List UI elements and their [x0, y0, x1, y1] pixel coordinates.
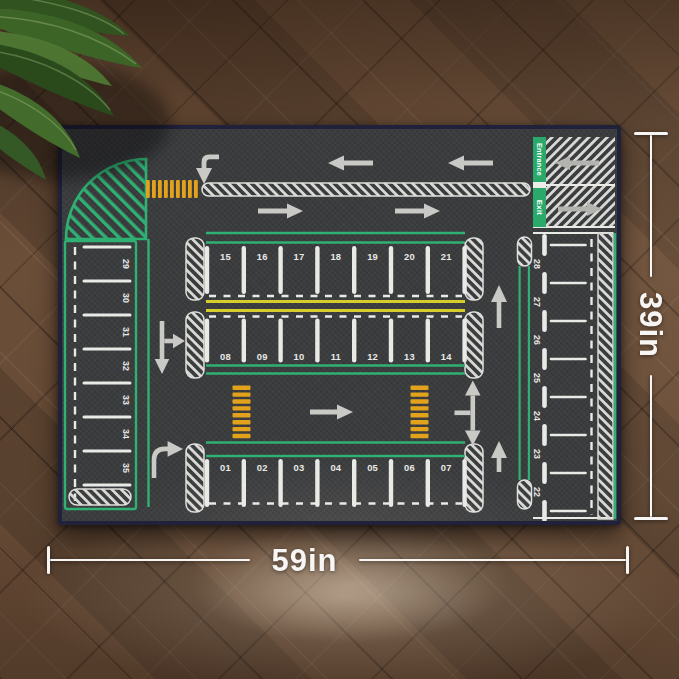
- dimension-line: [650, 375, 653, 517]
- light-reflection: [120, 500, 580, 670]
- stall-divider: [426, 246, 430, 294]
- entrance-label: Entrance: [535, 143, 544, 176]
- stall-divider: [389, 246, 393, 294]
- left-arrow-icon: [328, 156, 373, 171]
- turn-right-arrow-icon: [152, 441, 183, 478]
- stall-divider: [242, 459, 246, 507]
- parking-spot-number: 06: [404, 462, 415, 473]
- parking-spot-number: 22: [532, 487, 542, 497]
- stall-divider: [205, 246, 209, 294]
- stall-divider: [389, 319, 393, 363]
- stall-pin: [542, 234, 547, 256]
- parking-spot-number: 21: [441, 251, 452, 262]
- crosswalk-bar: [233, 406, 251, 410]
- stall-divider: [278, 319, 282, 363]
- parking-spot-number: 07: [441, 462, 452, 473]
- parking-spot-number: 04: [330, 462, 341, 473]
- stall-divider: [205, 459, 209, 507]
- right-arrow-icon: [258, 204, 303, 219]
- parking-spot-number: 33: [121, 395, 131, 405]
- parking-spot-number: 32: [121, 361, 131, 371]
- exit-label: Exit: [535, 200, 544, 216]
- entrance-exit-gate: Entrance Exit: [533, 137, 615, 227]
- curb-end-cap: [518, 237, 532, 266]
- plant-leaves: [0, 0, 252, 200]
- stall-divider: [426, 459, 430, 507]
- down-branch-arrow-icon: [155, 321, 185, 374]
- parking-spot-number: 17: [294, 251, 305, 262]
- parking-spot-number: 18: [330, 251, 341, 262]
- parking-spot-number: 35: [121, 463, 131, 473]
- crosswalk-bar: [411, 386, 429, 390]
- crosswalk-bar: [233, 420, 251, 424]
- stall-divider: [315, 246, 319, 294]
- column-end-cap: [69, 489, 131, 505]
- parking-spot-number: 03: [294, 462, 305, 473]
- crosswalk-bar: [411, 420, 429, 424]
- parking-spot-number: 26: [532, 335, 542, 345]
- crosswalk-bar: [233, 413, 251, 417]
- left-parking-column: [65, 159, 149, 509]
- stall-divider: [389, 459, 393, 507]
- crosswalk-bar: [411, 406, 429, 410]
- gate-gap: [533, 182, 546, 188]
- stall-divider: [462, 319, 466, 363]
- up-arrow-icon: [491, 441, 507, 472]
- left-arrow-icon: [448, 156, 493, 171]
- stall-divider: [278, 459, 282, 507]
- parking-spot-number: 10: [294, 351, 305, 362]
- width-label: 59in: [250, 543, 359, 579]
- block-end-cap: [465, 238, 483, 300]
- stall-pin: [542, 500, 547, 521]
- parking-spot-number: 15: [220, 251, 231, 262]
- parking-spot-number: 11: [331, 351, 341, 362]
- center-road: [310, 381, 481, 446]
- dimension-tick: [634, 517, 668, 520]
- right-arrow-icon: [395, 204, 440, 219]
- parking-spot-number: 05: [367, 462, 378, 473]
- crosswalk-bar: [411, 413, 429, 417]
- crosswalk-bar: [233, 399, 251, 403]
- stall-divider: [462, 246, 466, 294]
- block-end-cap: [186, 312, 204, 378]
- parking-spot-number: 12: [367, 351, 378, 362]
- edge-hatch-strip: [598, 233, 613, 519]
- stall-pin: [542, 462, 547, 484]
- parking-spot-number: 08: [220, 351, 231, 362]
- dimension-line: [50, 559, 250, 562]
- product-photo: Entrance Exit: [0, 0, 679, 679]
- width-dimension: 59in: [47, 546, 629, 574]
- stall-divider: [205, 319, 209, 363]
- stall-divider: [462, 459, 466, 507]
- stall-divider: [352, 246, 356, 294]
- curb-end-cap: [518, 480, 532, 509]
- crosswalk-bar: [411, 392, 429, 396]
- side-road-arrows: [152, 285, 507, 478]
- block-end-cap: [186, 444, 204, 512]
- crosswalk-bar: [411, 399, 429, 403]
- parking-spot-number: 30: [121, 293, 131, 303]
- up-arrow-icon: [491, 285, 507, 328]
- crosswalk-bar: [411, 434, 429, 438]
- stall-divider: [352, 459, 356, 507]
- crosswalk-bar: [233, 427, 251, 431]
- crosswalk-bar: [233, 392, 251, 396]
- stall-pin: [542, 386, 547, 408]
- stall-pin: [542, 424, 547, 446]
- stall-divider: [426, 319, 430, 363]
- parking-spot-number: 28: [532, 259, 542, 269]
- stall-divider: [242, 319, 246, 363]
- parking-spot-number: 27: [532, 297, 542, 307]
- stall-pin: [542, 272, 547, 294]
- parking-spot-number: 23: [532, 449, 542, 459]
- stall-divider: [315, 319, 319, 363]
- right-arrow-icon: [310, 405, 353, 420]
- crosswalk-bar: [411, 427, 429, 431]
- parking-spot-number: 25: [532, 373, 542, 383]
- parking-spot-number: 20: [404, 251, 415, 262]
- parking-spot-number: 02: [257, 462, 268, 473]
- block-end-cap: [186, 238, 204, 300]
- height-label: 39in: [634, 277, 668, 373]
- dimension-line: [650, 135, 653, 277]
- stall-pin: [542, 348, 547, 370]
- parking-spot-number: 29: [121, 259, 131, 269]
- parking-spot-number: 09: [257, 351, 268, 362]
- dimension-line: [359, 559, 626, 562]
- parking-spot-number: 24: [532, 411, 542, 421]
- parking-spot-number: 19: [367, 251, 378, 262]
- junction-arrow-icon: [455, 381, 481, 446]
- gate-road-hatch: [546, 137, 615, 227]
- front-parking-row: [186, 443, 483, 513]
- parking-spot-number: 31: [121, 327, 131, 337]
- parking-spot-number: 14: [441, 351, 452, 362]
- parking-spot-number: 13: [404, 351, 415, 362]
- dimension-tick: [626, 546, 629, 574]
- stall-divider: [352, 319, 356, 363]
- stall-divider: [315, 459, 319, 507]
- stall-pin: [542, 310, 547, 332]
- stall-divider: [242, 246, 246, 294]
- parking-spot-number: 16: [257, 251, 268, 262]
- block-end-cap: [465, 312, 483, 378]
- crosswalk-bar: [233, 434, 251, 438]
- block-end-cap: [465, 444, 483, 512]
- height-dimension: 39in: [634, 132, 668, 520]
- parking-spot-number: 01: [220, 462, 231, 473]
- crosswalk-bar: [233, 386, 251, 390]
- stall-divider: [278, 246, 282, 294]
- parking-spot-number: 34: [121, 429, 131, 439]
